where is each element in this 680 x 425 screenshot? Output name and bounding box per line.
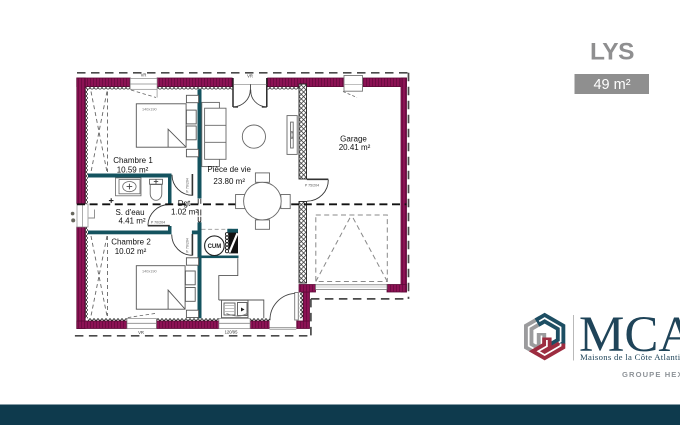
svg-text:Chambre 2: Chambre 2 [111, 238, 151, 247]
svg-text:10.59 m²: 10.59 m² [117, 166, 149, 175]
svg-text:20.41 m²: 20.41 m² [339, 143, 371, 152]
svg-text:P 75/204: P 75/204 [305, 184, 319, 188]
svg-text:Chambre 1: Chambre 1 [113, 156, 153, 165]
svg-text:Maisons de la Côte Atlantique: Maisons de la Côte Atlantique [580, 352, 680, 362]
svg-text:P 70/204: P 70/204 [151, 221, 165, 225]
svg-text:10.02 m²: 10.02 m² [115, 247, 147, 256]
svg-text:140x190: 140x190 [142, 108, 157, 112]
svg-text:23.80 m²: 23.80 m² [213, 177, 245, 186]
svg-text:LYS: LYS [590, 39, 634, 66]
svg-text:VR: VR [247, 74, 253, 79]
svg-text:140x190: 140x190 [142, 270, 157, 274]
svg-text:P 70/204: P 70/204 [185, 178, 189, 192]
svg-text:CUM: CUM [208, 244, 222, 250]
svg-text:GROUPE HEXAGONE: GROUPE HEXAGONE [622, 370, 680, 379]
svg-text:49 m²: 49 m² [593, 77, 630, 93]
svg-text:Pièce de vie: Pièce de vie [207, 165, 251, 174]
svg-text:120/95: 120/95 [225, 330, 238, 335]
svg-text:VR: VR [138, 330, 144, 335]
svg-text:P 70/204: P 70/204 [185, 238, 189, 252]
svg-text:1.02 m²: 1.02 m² [171, 208, 198, 217]
svg-text:4.41 m²: 4.41 m² [118, 216, 145, 225]
svg-text:VR: VR [141, 73, 147, 78]
